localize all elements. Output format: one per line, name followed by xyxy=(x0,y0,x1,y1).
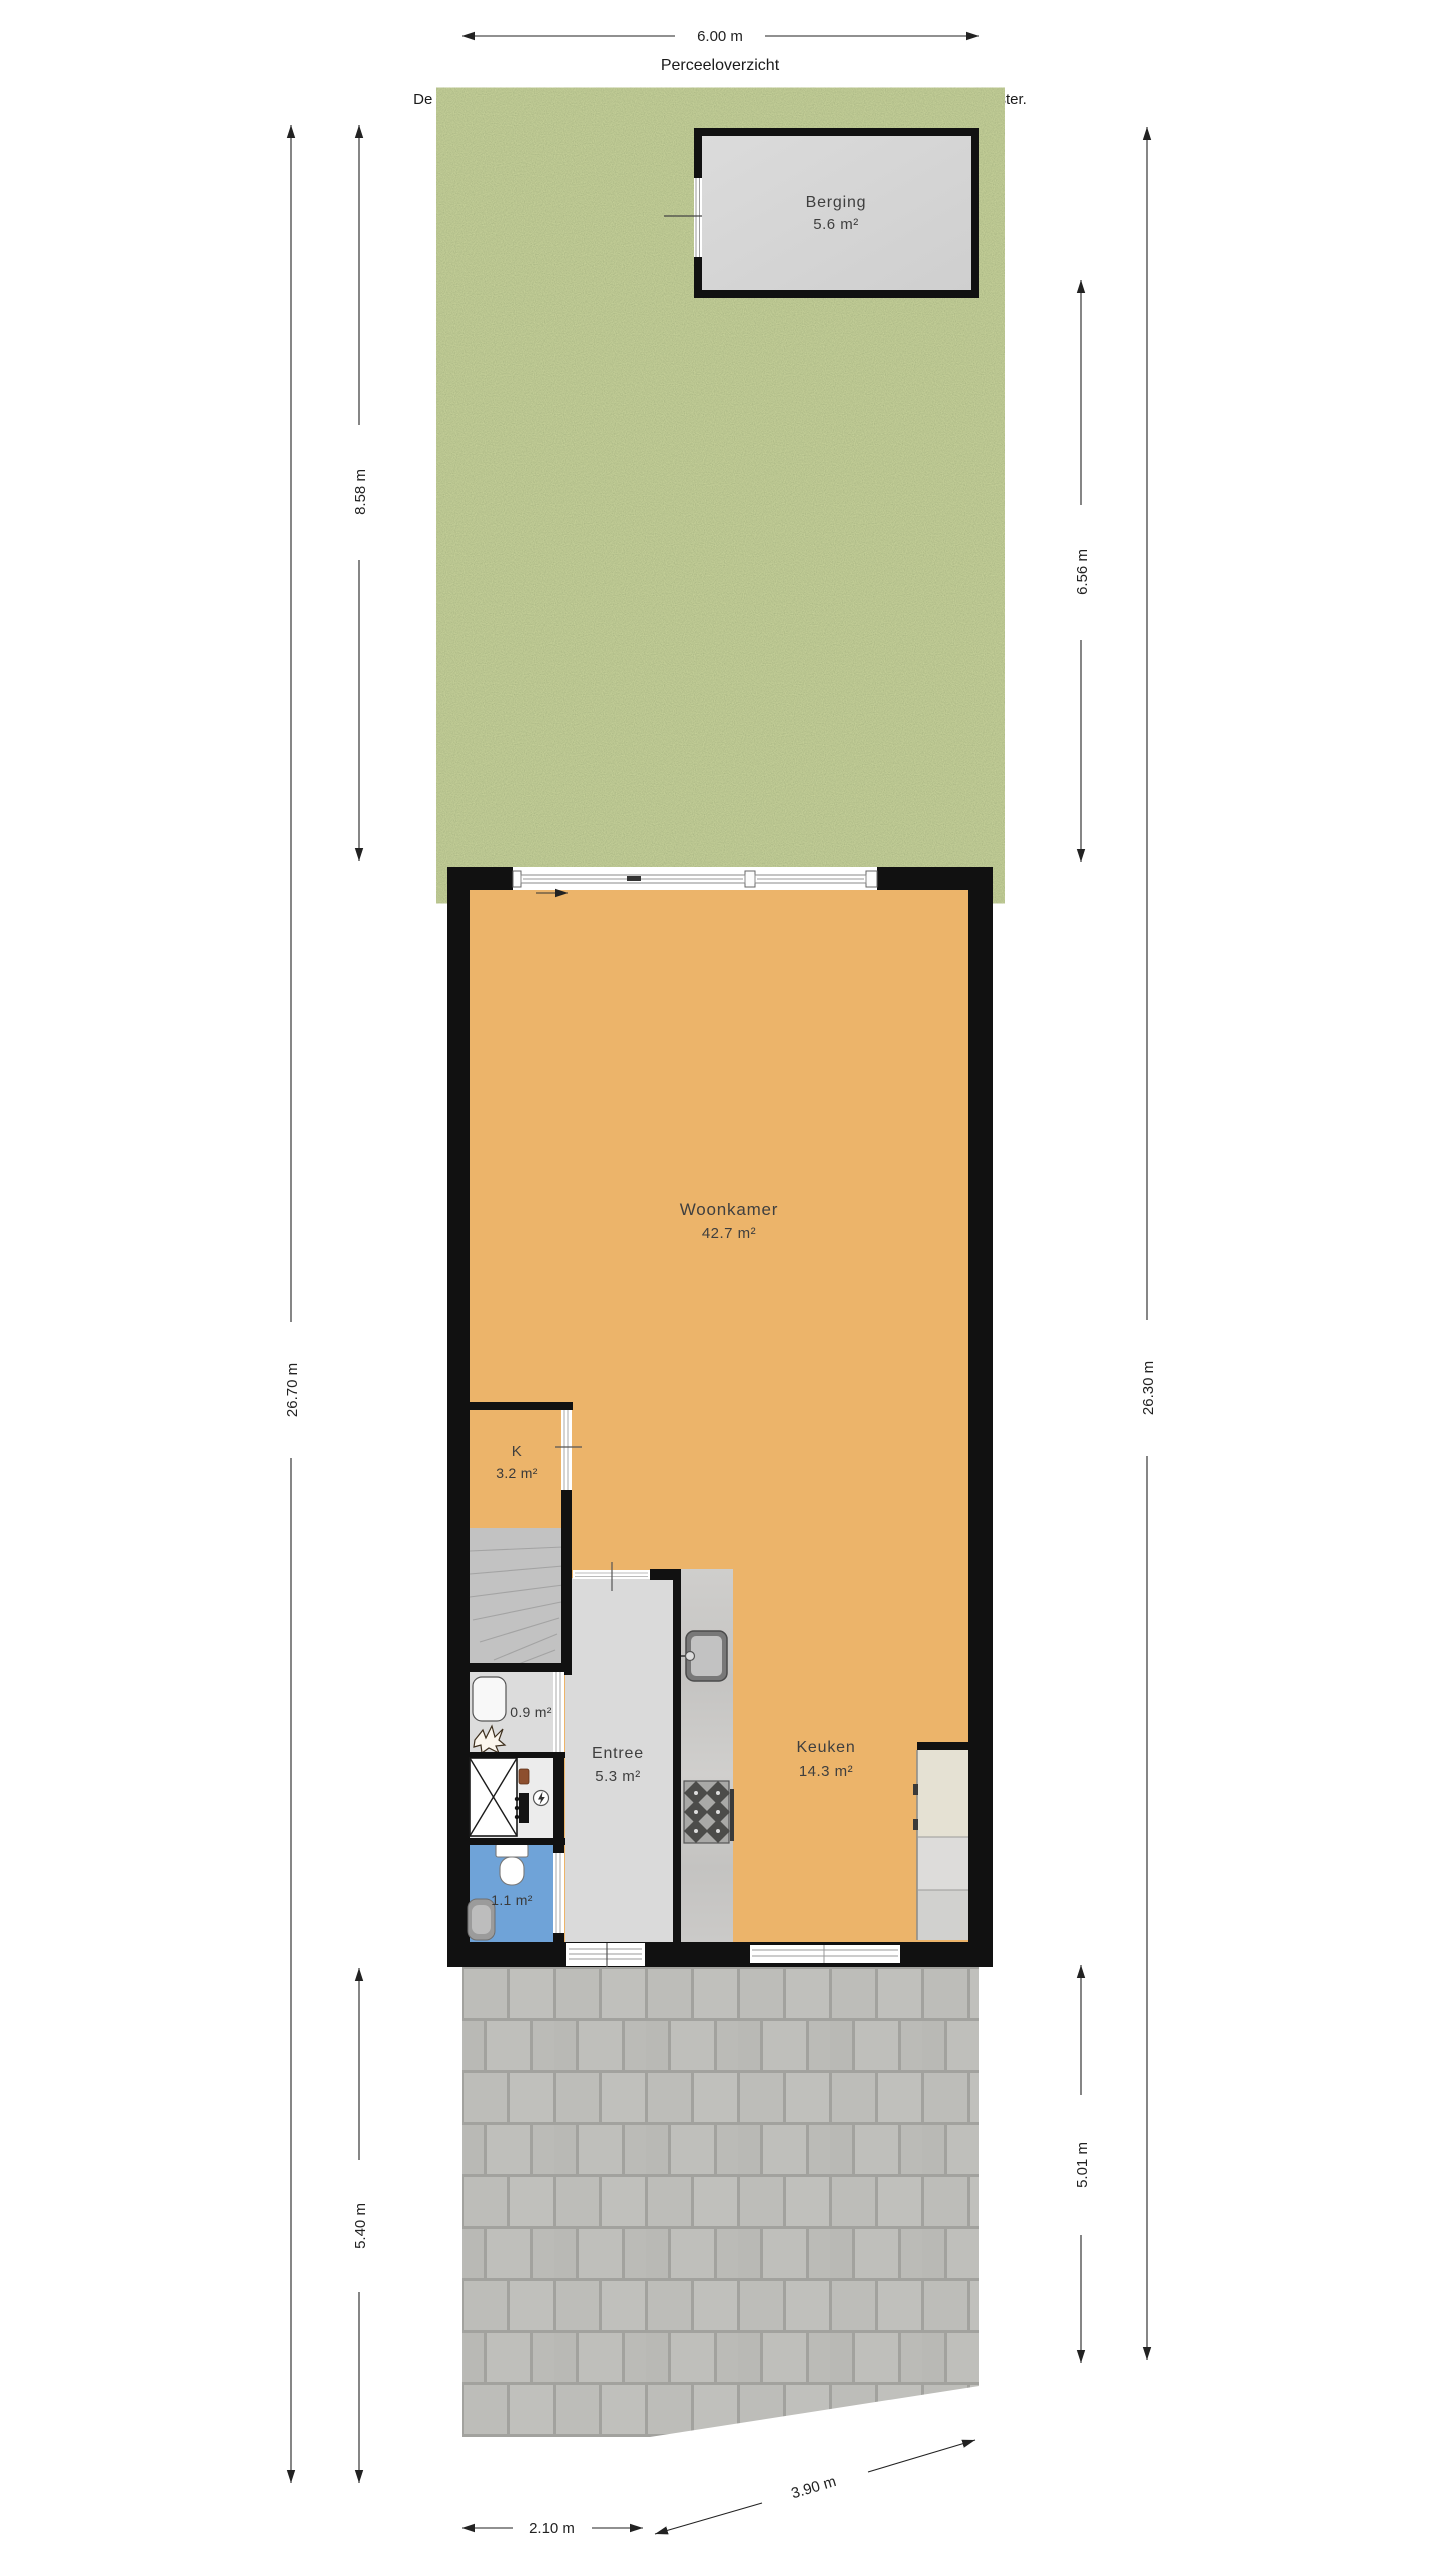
doorbell-icon xyxy=(519,1769,529,1784)
kitchen-counter-right xyxy=(913,1742,968,1940)
room-area-keuken: 14.3 m² xyxy=(799,1763,853,1780)
room-area-entree: 5.3 m² xyxy=(595,1768,641,1785)
kitchen-window xyxy=(750,1945,900,1963)
room-area-kast: 3.2 m² xyxy=(496,1465,538,1481)
room-area-toilet: 1.1 m² xyxy=(491,1892,533,1908)
floorplan-page: 6.00 m Perceeloverzicht De afmetingen va… xyxy=(0,0,1440,2560)
terrace-paving xyxy=(462,1967,979,2437)
dim-left-total-label: 26.70 m xyxy=(284,1363,301,1417)
dim-terrace-width-right-label: 3.90 m xyxy=(789,2473,838,2502)
dim-plot-width-label: 6.00 m xyxy=(697,28,743,45)
sliding-door xyxy=(513,867,877,893)
stove-icon xyxy=(684,1781,734,1843)
toilet-tank-icon xyxy=(496,1844,528,1857)
disclaimer-text: De afmetingen van het perceel zijn indic… xyxy=(413,91,1027,108)
floorplan-canvas: 6.00 m Perceeloverzicht De afmetingen va… xyxy=(0,0,1440,2560)
dim-terrace-left-label: 5.40 m xyxy=(352,2203,369,2249)
toilet-bowl-icon xyxy=(500,1857,524,1885)
room-meterkast xyxy=(470,1758,555,1838)
shed-door-opening xyxy=(694,178,702,257)
room-area-storage: 0.9 m² xyxy=(510,1704,552,1720)
kitchen-counter-left xyxy=(681,1569,734,1942)
room-label-keuken: Keuken xyxy=(796,1739,855,1756)
staircase xyxy=(470,1528,563,1665)
house: 1.1 m² xyxy=(447,867,993,1988)
page-title: Perceeloverzicht xyxy=(661,57,780,74)
shed-floor xyxy=(702,136,971,290)
room-label-kast: K xyxy=(512,1443,523,1460)
boiler-icon xyxy=(473,1677,506,1721)
kitchen-sink-icon xyxy=(681,1631,727,1681)
room-area-berging: 5.6 m² xyxy=(813,216,859,233)
room-label-berging: Berging xyxy=(806,194,867,211)
dim-terrace-width-left-label: 2.10 m xyxy=(529,2520,575,2537)
room-label-woonkamer: Woonkamer xyxy=(680,1200,779,1219)
dim-terrace-right-label: 5.01 m xyxy=(1074,2142,1091,2188)
room-label-entree: Entree xyxy=(592,1745,644,1762)
oven-handle xyxy=(730,1789,734,1841)
dim-right-total-label: 26.30 m xyxy=(1140,1361,1157,1415)
room-toilet: 1.1 m² xyxy=(468,1844,555,1942)
shed-berging: Berging 5.6 m² xyxy=(664,128,979,298)
room-area-woonkamer: 42.7 m² xyxy=(702,1225,756,1242)
dim-garden-left-label: 8.58 m xyxy=(352,469,369,515)
door-handle xyxy=(627,876,641,881)
garden: Berging 5.6 m² xyxy=(462,125,979,866)
dimension-plot-width: 6.00 m xyxy=(462,28,979,45)
fuse-panel-icon xyxy=(519,1793,529,1823)
dim-garden-right-label: 6.56 m xyxy=(1074,549,1091,595)
